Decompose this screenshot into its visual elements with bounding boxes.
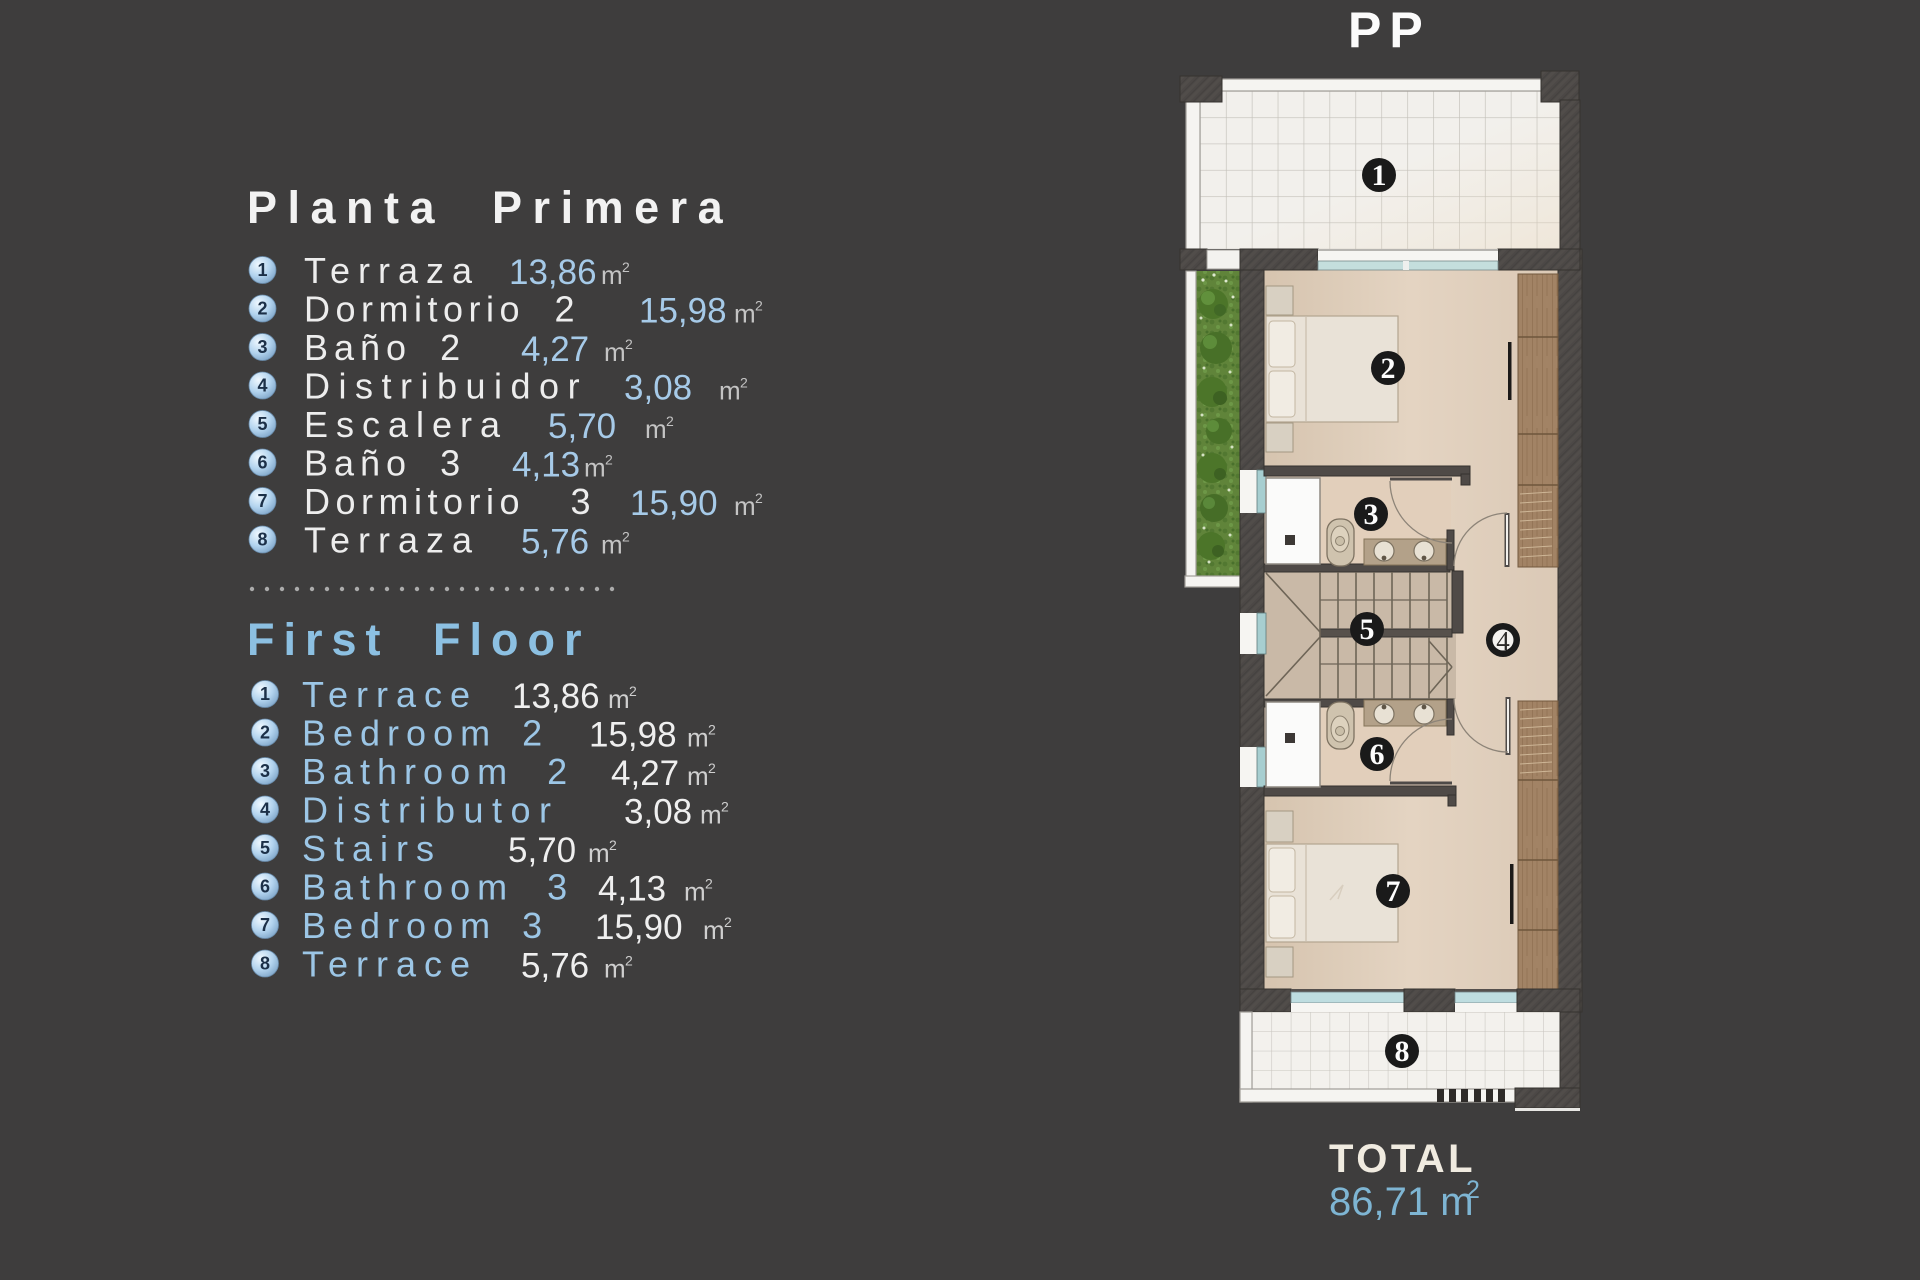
svg-text:1: 1 [257, 260, 267, 280]
svg-text:3,08: 3,08 [624, 793, 692, 832]
svg-text:m: m [584, 453, 606, 483]
svg-text:5,76: 5,76 [521, 523, 589, 562]
svg-text:3: 3 [260, 761, 270, 781]
svg-text:2: 2 [605, 452, 613, 468]
svg-text:2: 2 [622, 259, 630, 275]
svg-text:5: 5 [1360, 613, 1375, 646]
svg-text:2: 2 [260, 723, 270, 743]
svg-text:Bathroom 3: Bathroom 3 [302, 867, 574, 908]
svg-text:1: 1 [1372, 159, 1387, 192]
svg-text:2: 2 [740, 375, 748, 391]
svg-text:Terraza: Terraza [304, 250, 480, 291]
svg-text:m: m [687, 723, 709, 753]
svg-text:4,27: 4,27 [521, 330, 589, 369]
svg-text:Planta Primera: Planta Primera [247, 182, 733, 233]
svg-text:2: 2 [609, 837, 617, 853]
svg-text:Dormitorio 3: Dormitorio 3 [304, 481, 596, 522]
svg-text:4: 4 [260, 800, 270, 820]
svg-text:2: 2 [755, 298, 763, 314]
svg-text:2: 2 [755, 490, 763, 506]
svg-text:4,27: 4,27 [611, 754, 679, 793]
svg-text:PP: PP [1348, 2, 1431, 58]
svg-text:3: 3 [1364, 498, 1379, 531]
svg-text:2: 2 [257, 299, 267, 319]
svg-text:Bedroom 3: Bedroom 3 [302, 905, 549, 946]
svg-text:Terrace: Terrace [302, 674, 478, 715]
svg-text:Bathroom 2: Bathroom 2 [302, 751, 574, 792]
svg-text:m: m [601, 260, 623, 290]
svg-text:m: m [734, 491, 756, 521]
svg-text:m: m [734, 299, 756, 329]
svg-text:TOTAL: TOTAL [1329, 1137, 1476, 1181]
svg-text:Dormitorio 2: Dormitorio 2 [304, 289, 580, 330]
svg-text:m: m [700, 800, 722, 830]
svg-text:4,13: 4,13 [512, 446, 580, 485]
svg-text:2: 2 [705, 876, 713, 892]
svg-text:4: 4 [1496, 626, 1510, 656]
svg-text:Terrace: Terrace [302, 944, 478, 985]
svg-text:Terraza: Terraza [304, 520, 480, 561]
svg-text:5: 5 [260, 838, 270, 858]
svg-text:m: m [604, 337, 626, 367]
svg-text:m: m [687, 761, 709, 791]
svg-text:15,90: 15,90 [630, 484, 718, 523]
svg-text:Bedroom 2: Bedroom 2 [302, 713, 549, 754]
svg-text:Baño 3: Baño 3 [304, 443, 466, 484]
svg-text:5,70: 5,70 [508, 831, 576, 870]
svg-text:5,70: 5,70 [548, 407, 616, 446]
svg-text:6: 6 [257, 453, 267, 473]
svg-text:7: 7 [257, 491, 267, 511]
svg-text:4: 4 [257, 376, 267, 396]
svg-text:5,76: 5,76 [521, 947, 589, 986]
svg-text:5: 5 [257, 414, 267, 434]
svg-text:7: 7 [1386, 875, 1401, 908]
svg-text:m: m [608, 684, 630, 714]
svg-text:13,86: 13,86 [509, 253, 597, 292]
svg-text:Baño 2: Baño 2 [304, 327, 466, 368]
svg-text:m: m [601, 530, 623, 560]
svg-text:2: 2 [666, 413, 674, 429]
svg-text:2: 2 [708, 760, 716, 776]
svg-text:2: 2 [629, 683, 637, 699]
svg-text:Escalera: Escalera [304, 404, 508, 445]
svg-text:15,98: 15,98 [639, 292, 727, 331]
svg-text:Stairs: Stairs [302, 828, 442, 869]
svg-text:m: m [703, 915, 725, 945]
svg-text:2: 2 [1466, 1176, 1480, 1204]
svg-text:6: 6 [260, 877, 270, 897]
svg-text:Distributor: Distributor [302, 790, 560, 831]
svg-text:First Floor: First Floor [247, 614, 591, 665]
svg-text:m: m [684, 877, 706, 907]
svg-text:7: 7 [260, 915, 270, 935]
svg-text:m: m [604, 954, 626, 984]
svg-text:m: m [645, 414, 667, 444]
svg-text:2: 2 [625, 336, 633, 352]
svg-text:13,86: 13,86 [512, 677, 600, 716]
svg-text:15,90: 15,90 [595, 908, 683, 947]
svg-text:2: 2 [724, 914, 732, 930]
svg-text:3,08: 3,08 [624, 369, 692, 408]
svg-text:3: 3 [257, 337, 267, 357]
svg-text:Distribuidor: Distribuidor [304, 366, 588, 407]
svg-text:m: m [588, 838, 610, 868]
svg-text:86,71 m: 86,71 m [1329, 1180, 1474, 1224]
svg-text:15,98: 15,98 [589, 716, 677, 755]
svg-text:8: 8 [257, 530, 267, 550]
svg-text:2: 2 [622, 529, 630, 545]
svg-text:2: 2 [708, 722, 716, 738]
svg-text:4,13: 4,13 [598, 870, 666, 909]
svg-text:2: 2 [625, 953, 633, 969]
svg-text:2: 2 [721, 799, 729, 815]
svg-text:6: 6 [1370, 738, 1385, 771]
svg-text:m: m [719, 376, 741, 406]
svg-text:8: 8 [260, 954, 270, 974]
svg-text:2: 2 [1381, 352, 1396, 385]
svg-text:8: 8 [1395, 1035, 1410, 1068]
svg-text:1: 1 [260, 684, 270, 704]
